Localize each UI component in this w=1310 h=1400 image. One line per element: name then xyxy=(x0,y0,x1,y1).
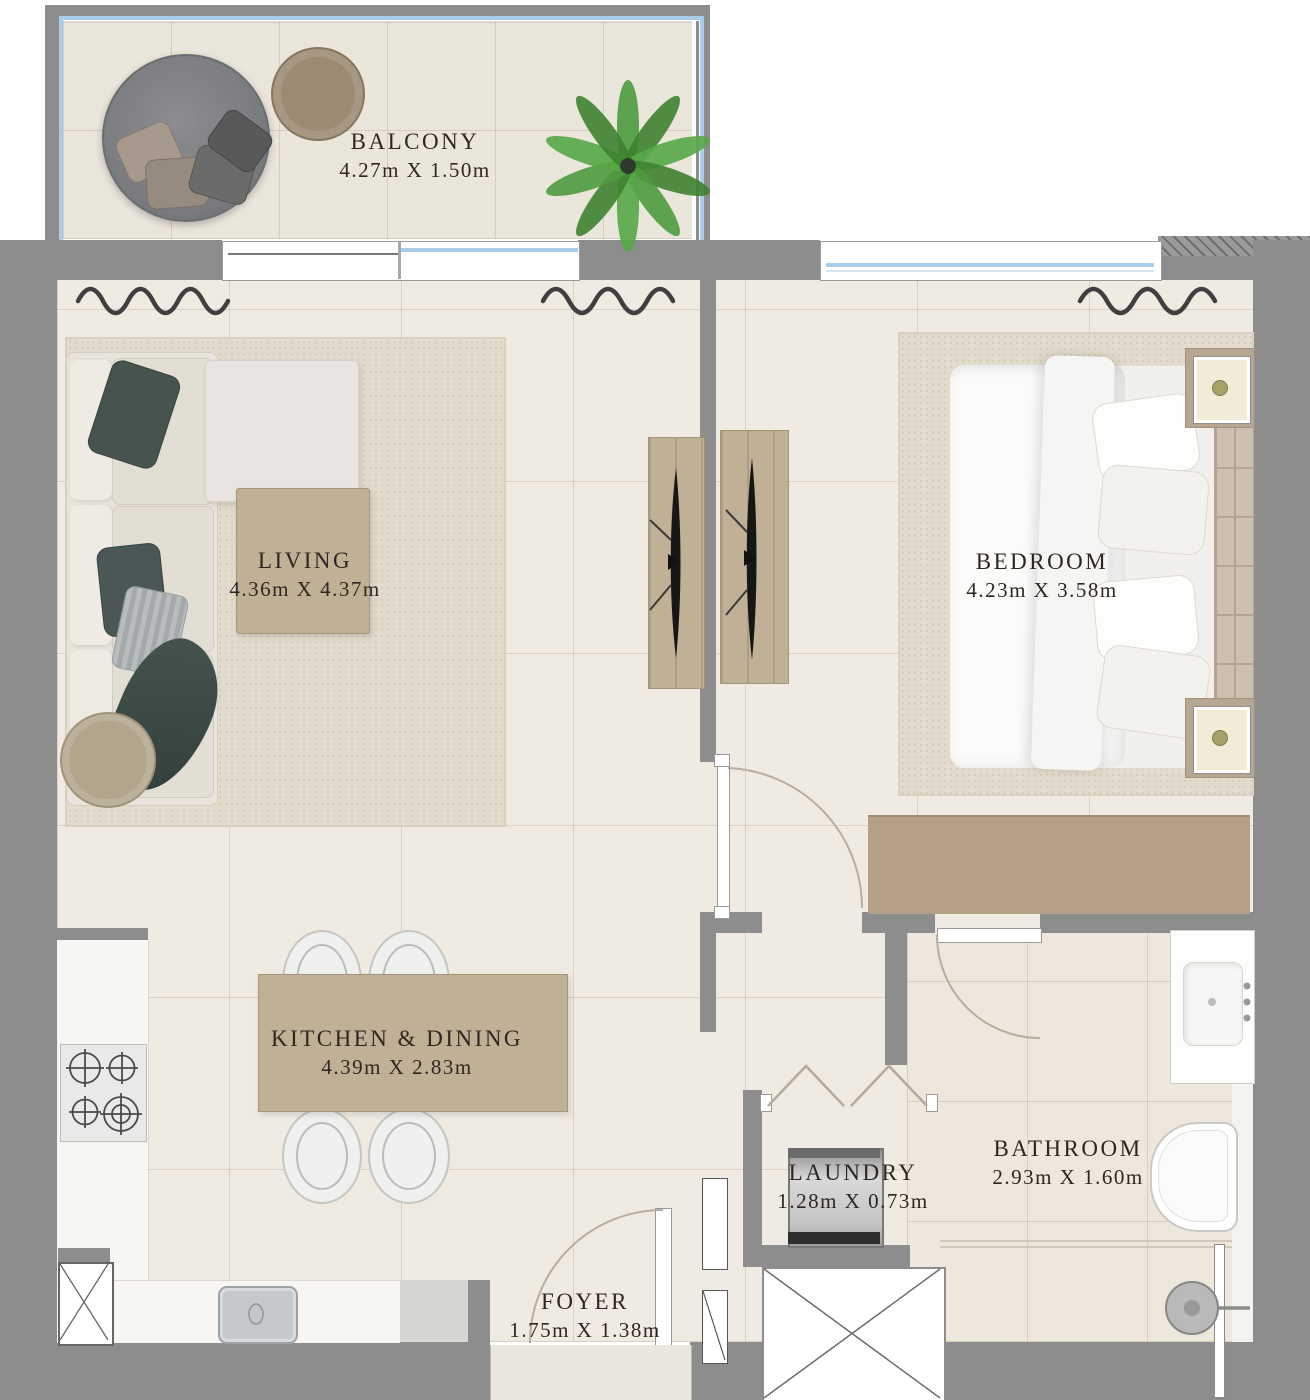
kitchen-dining-dims: 4.39m X 2.83m xyxy=(271,1055,523,1080)
bathroom-name: BATHROOM xyxy=(992,1136,1143,1162)
bathroom-top-wall-left xyxy=(862,912,935,933)
bottom-wall-segment-left xyxy=(0,1342,490,1400)
bedroom-door-frame-bottom xyxy=(714,906,730,919)
bed-pillow-2 xyxy=(1097,463,1211,556)
bedroom-label: BEDROOM 4.23m X 3.58m xyxy=(966,549,1117,603)
dining-chair-4 xyxy=(368,1108,450,1204)
laundry-dims: 1.28m X 0.73m xyxy=(777,1189,928,1214)
bedroom-name: BEDROOM xyxy=(966,549,1117,575)
bedroom-window xyxy=(820,241,1162,281)
ottoman xyxy=(205,360,359,502)
bedroom-door-leaf xyxy=(717,764,730,912)
kitchen-wall-stub-right xyxy=(468,1280,490,1342)
nightstand-bottom-lamp-knob xyxy=(1212,730,1228,746)
bathroom-label: BATHROOM 2.93m X 1.60m xyxy=(992,1136,1143,1190)
living-label: LIVING 4.36m X 4.37m xyxy=(229,548,380,602)
bottom-wall-segment-right xyxy=(942,1342,1310,1400)
kitchen-sink xyxy=(218,1286,298,1344)
bathroom-sink-basin xyxy=(1183,962,1243,1046)
living-dims: 4.36m X 4.37m xyxy=(229,577,380,602)
laundry-door-frame-right xyxy=(926,1094,938,1112)
living-name: LIVING xyxy=(229,548,380,574)
laundry-name: LAUNDRY xyxy=(777,1160,928,1186)
kitchen-dining-label: KITCHEN & DINING 4.39m X 2.83m xyxy=(271,1026,523,1080)
foyer-door-panel xyxy=(702,1290,728,1364)
balcony-side-table xyxy=(271,47,365,141)
entrance-threshold xyxy=(490,1345,692,1400)
balcony-label: BALCONY 4.27m X 1.50m xyxy=(339,129,490,183)
balcony-sliding-door-divider xyxy=(398,241,401,279)
washing-machine-panel xyxy=(788,1148,880,1158)
hall-wall-stub xyxy=(700,912,762,933)
kitchen-appliance-block xyxy=(400,1280,468,1342)
left-wall xyxy=(0,240,57,1400)
service-shaft-box xyxy=(762,1267,946,1400)
kitchen-shaft-wall-stub xyxy=(58,1248,110,1262)
foyer-name: FOYER xyxy=(509,1289,660,1315)
balcony-sliding-door-glass-line xyxy=(401,248,578,252)
bedroom-door-frame-top xyxy=(714,754,730,767)
balcony-name: BALCONY xyxy=(339,129,490,155)
kitchen-shaft-box xyxy=(58,1262,114,1346)
balcony-sliding-door-rail-line xyxy=(228,253,398,255)
right-wall xyxy=(1253,240,1310,1400)
laundry-label: LAUNDRY 1.28m X 0.73m xyxy=(777,1160,928,1214)
balcony-dims: 4.27m X 1.50m xyxy=(339,158,490,183)
bathroom-threshold-line-1 xyxy=(940,1240,1232,1242)
kitchen-counter-wall-stub xyxy=(57,928,148,940)
living-tv-console xyxy=(648,437,705,689)
toilet-seat xyxy=(1158,1130,1228,1222)
top-wall-segment-mid xyxy=(578,240,820,280)
bedroom-window-glass-line-2 xyxy=(826,270,1154,272)
bathroom-door-leaf xyxy=(937,928,1042,943)
laundry-bottom-wall xyxy=(743,1245,910,1267)
laundry-left-wall xyxy=(743,1090,762,1248)
laundry-door-frame-left xyxy=(760,1094,772,1112)
bathroom-dims: 2.93m X 1.60m xyxy=(992,1165,1143,1190)
washing-machine-base xyxy=(788,1232,880,1244)
foyer-closet-panel xyxy=(702,1178,728,1270)
wardrobe xyxy=(868,815,1250,914)
bedroom-tv-console xyxy=(720,430,789,684)
living-side-table-round xyxy=(60,712,156,808)
balcony-sliding-door xyxy=(222,241,580,281)
bathroom-threshold-line-2 xyxy=(940,1246,1232,1248)
kitchen-dining-name: KITCHEN & DINING xyxy=(271,1026,523,1052)
shower-glass-panel xyxy=(1214,1244,1225,1398)
foyer-dims: 1.75m X 1.38m xyxy=(509,1318,660,1343)
bedroom-window-glass-line xyxy=(826,263,1154,267)
kitchen-stove xyxy=(60,1044,147,1142)
bedroom-dims: 4.23m X 3.58m xyxy=(966,578,1117,603)
nightstand-top-lamp-knob xyxy=(1212,380,1228,396)
floor-plan: BALCONY 4.27m X 1.50m LIVING 4.36m X 4.3… xyxy=(0,0,1310,1400)
dining-chair-3 xyxy=(282,1108,362,1204)
balcony-wall-left xyxy=(45,5,59,243)
bathroom-left-jamb xyxy=(885,933,907,1065)
foyer-label: FOYER 1.75m X 1.38m xyxy=(509,1289,660,1343)
